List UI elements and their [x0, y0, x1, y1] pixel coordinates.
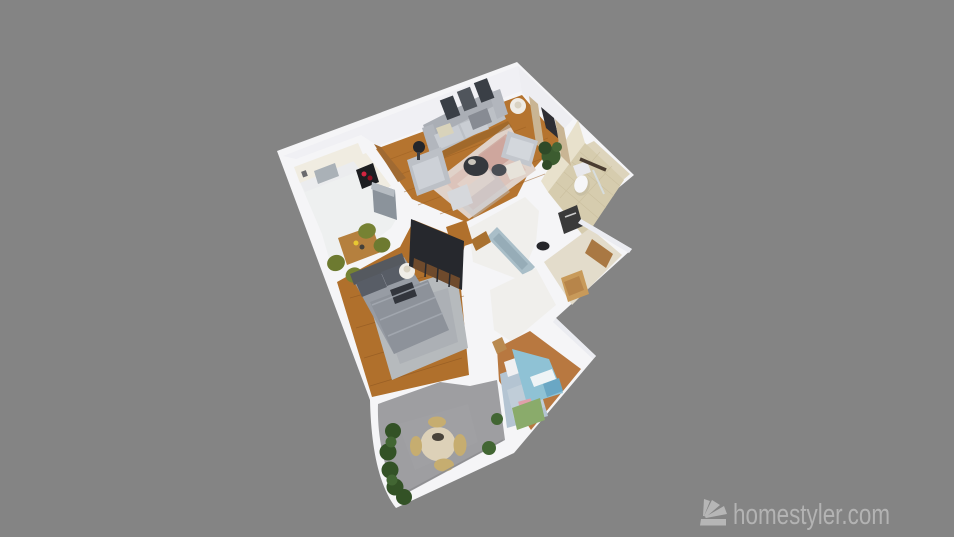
svg-text:homestyler.com: homestyler.com [733, 499, 890, 531]
